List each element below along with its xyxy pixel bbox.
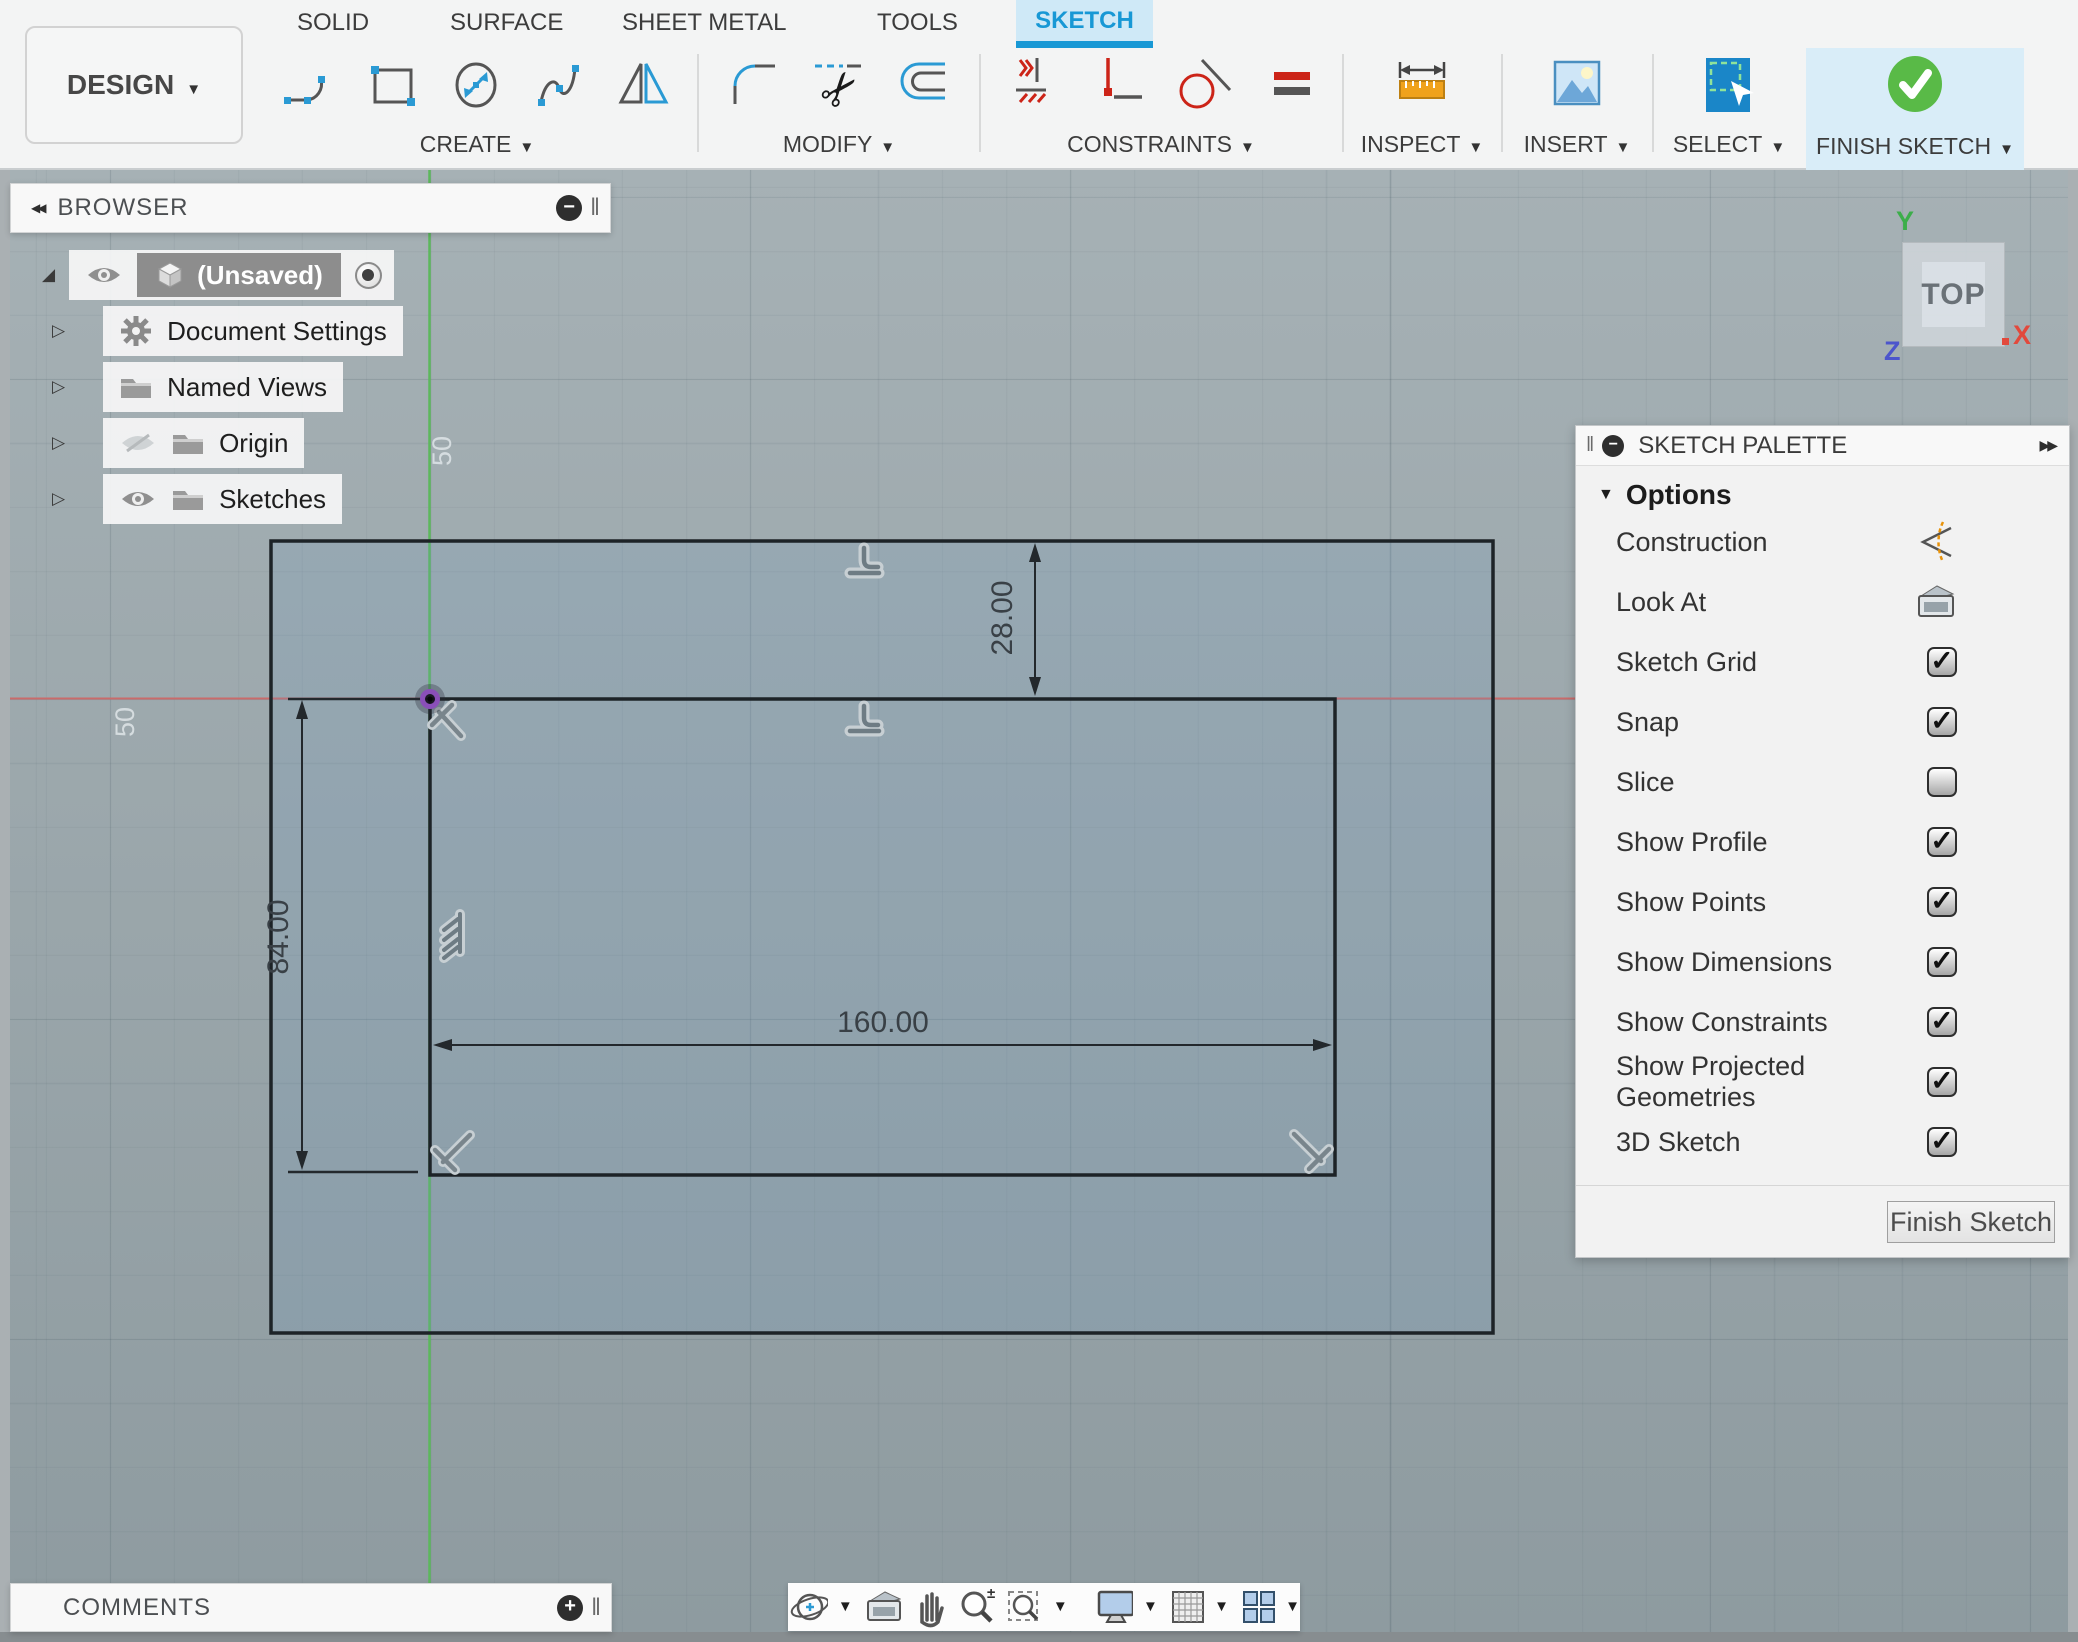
- row-label: Show Projected Geometries: [1616, 1051, 1927, 1113]
- tab-solid[interactable]: SOLID: [297, 9, 369, 37]
- row-label: Snap: [1616, 707, 1679, 738]
- document-selected[interactable]: (Unsaved): [137, 253, 341, 297]
- browser-row-named-views[interactable]: Named Views: [52, 362, 343, 412]
- expand-triangle-icon[interactable]: [52, 433, 65, 453]
- document-name: (Unsaved): [197, 260, 323, 291]
- construction-icon[interactable]: [1915, 520, 1957, 564]
- palette-row-construction[interactable]: Construction: [1576, 512, 2069, 572]
- eye-icon[interactable]: [85, 263, 123, 287]
- chevron-down-icon: [519, 131, 534, 158]
- palette-row-show-projected-geometries[interactable]: Show Projected Geometries: [1576, 1052, 2069, 1112]
- workspace-switcher[interactable]: DESIGN: [25, 26, 243, 144]
- look-at-icon[interactable]: [1913, 582, 1957, 622]
- minimize-palette-icon[interactable]: [1602, 435, 1624, 457]
- active-component-radio[interactable]: [355, 262, 382, 289]
- eye-off-icon[interactable]: [119, 431, 157, 455]
- spline-tool-icon[interactable]: [531, 54, 591, 114]
- zoom-window-icon[interactable]: [1005, 1586, 1043, 1628]
- palette-drag-handle[interactable]: [1576, 434, 1602, 457]
- svg-text:±: ±: [987, 1586, 995, 1602]
- palette-row-look-at[interactable]: Look At: [1576, 572, 2069, 632]
- viewcube-top-face[interactable]: TOP: [1921, 278, 1985, 312]
- tangent-constraint-icon[interactable]: [1172, 54, 1238, 114]
- orbit-icon[interactable]: [788, 1585, 828, 1629]
- browser-row-origin[interactable]: Origin: [52, 418, 304, 468]
- gear-icon: [119, 314, 153, 348]
- row-label: Slice: [1616, 767, 1675, 798]
- viewports-icon[interactable]: [1239, 1587, 1275, 1627]
- offset-tool-icon[interactable]: [893, 54, 953, 114]
- modify-label[interactable]: MODIFY: [783, 131, 872, 158]
- toolbar-separator: [697, 54, 699, 152]
- create-label[interactable]: CREATE: [420, 131, 512, 158]
- row-label: Sketch Grid: [1616, 647, 1757, 678]
- tab-surface[interactable]: SURFACE: [450, 9, 563, 37]
- folder-icon: [171, 430, 205, 456]
- row-label: Construction: [1616, 527, 1768, 558]
- browser-row-document-settings[interactable]: Document Settings: [52, 306, 403, 356]
- finish-sketch-palette-button[interactable]: Finish Sketch: [1887, 1201, 2055, 1243]
- comments-drag-handle[interactable]: [583, 1594, 611, 1622]
- workspace-label: DESIGN: [67, 69, 174, 101]
- options-title: Options: [1626, 479, 1732, 511]
- expand-triangle-icon[interactable]: [42, 265, 55, 285]
- zoom-window-dropdown-icon[interactable]: [1053, 1598, 1068, 1616]
- browser-item-label: Document Settings: [167, 316, 387, 347]
- insert-label[interactable]: INSERT: [1524, 131, 1608, 158]
- row-label: Show Dimensions: [1616, 947, 1832, 978]
- row-label: Show Profile: [1616, 827, 1768, 858]
- grid-snaps-icon[interactable]: [1168, 1587, 1204, 1627]
- row-label: 3D Sketch: [1616, 1127, 1741, 1158]
- palette-row-3d-sketch[interactable]: 3D Sketch: [1576, 1112, 2069, 1172]
- sketch-palette-header[interactable]: SKETCH PALETTE: [1576, 426, 2069, 466]
- toolbar-separator: [1342, 54, 1344, 152]
- browser-row-sketches[interactable]: Sketches: [52, 474, 342, 524]
- palette-row-show-constraints[interactable]: Show Constraints: [1576, 992, 2069, 1052]
- measure-tool-icon[interactable]: [1391, 54, 1453, 114]
- axis-label-x: X: [2013, 320, 2031, 351]
- sketch-grid-checkbox[interactable]: [1927, 647, 1957, 677]
- chevron-down-icon: [1598, 486, 1614, 504]
- palette-row-snap[interactable]: Snap: [1576, 692, 2069, 752]
- finish-sketch-check-icon: [1883, 54, 1947, 116]
- fixed-constraint-icon[interactable]: [1000, 54, 1062, 114]
- display-settings-dropdown-icon[interactable]: [1143, 1598, 1158, 1616]
- group-modify: ✂ MODIFY: [702, 50, 976, 168]
- chevron-down-icon: [1616, 131, 1631, 158]
- browser-title: BROWSER: [57, 194, 188, 222]
- group-select: SELECT: [1656, 50, 1802, 168]
- finish-sketch-label: FINISH SKETCH: [1816, 133, 1991, 160]
- browser-header[interactable]: BROWSER: [10, 183, 611, 233]
- show-constraints-checkbox[interactable]: [1927, 1007, 1957, 1037]
- finish-sketch-button[interactable]: FINISH SKETCH: [1806, 48, 2024, 170]
- slice-checkbox[interactable]: [1927, 767, 1957, 797]
- axis-label-y: Y: [1896, 206, 1914, 237]
- fillet-tool-icon[interactable]: [725, 54, 785, 114]
- palette-row-slice[interactable]: Slice: [1576, 752, 2069, 812]
- show-dimensions-checkbox[interactable]: [1927, 947, 1957, 977]
- folder-icon: [171, 486, 205, 512]
- chevron-down-icon: [1999, 133, 2014, 160]
- tab-sketch-active[interactable]: SKETCH: [1016, 0, 1153, 41]
- window-frame-left: [0, 170, 10, 1642]
- select-tool-icon[interactable]: [1698, 54, 1760, 116]
- options-section-header[interactable]: Options: [1576, 466, 2069, 512]
- group-constraints: CONSTRAINTS: [984, 50, 1338, 168]
- add-comment-icon[interactable]: [557, 1595, 583, 1621]
- viewcube[interactable]: TOP: [1902, 242, 2005, 347]
- equal-constraint-icon[interactable]: [1262, 54, 1322, 114]
- expand-triangle-icon[interactable]: [52, 377, 65, 397]
- browser-item-label: Named Views: [167, 372, 327, 403]
- chevron-down-icon: [1240, 131, 1255, 158]
- tab-sketch-underline: [1016, 41, 1153, 48]
- window-frame-bottom: [0, 1632, 2078, 1642]
- look-at-icon[interactable]: [863, 1588, 901, 1626]
- sketch-palette: SKETCH PALETTE Options Construction Look…: [1575, 425, 2070, 1258]
- palette-title: SKETCH PALETTE: [1638, 432, 1847, 460]
- row-label: Look At: [1616, 587, 1706, 618]
- group-create: CREATE: [262, 50, 692, 168]
- orbit-dropdown-icon[interactable]: [838, 1598, 853, 1616]
- snap-checkbox[interactable]: [1927, 707, 1957, 737]
- browser-item-label: Sketches: [219, 484, 326, 515]
- palette-row-show-profile[interactable]: Show Profile: [1576, 812, 2069, 872]
- show-points-checkbox[interactable]: [1927, 887, 1957, 917]
- viewports-dropdown-icon[interactable]: [1285, 1598, 1300, 1616]
- palette-row-show-dimensions[interactable]: Show Dimensions: [1576, 932, 2069, 992]
- show-profile-checkbox[interactable]: [1927, 827, 1957, 857]
- show-projected-geometries-checkbox[interactable]: [1927, 1067, 1957, 1097]
- toolbar-separator: [1652, 54, 1654, 152]
- fusion-window: 50 50 28.00 84.00 160.00: [0, 0, 2078, 1642]
- folder-icon: [119, 374, 153, 400]
- comments-title: COMMENTS: [63, 1594, 211, 1622]
- row-label: Show Points: [1616, 887, 1766, 918]
- chevron-down-icon: [1468, 131, 1483, 158]
- toolbar-separator: [1501, 54, 1503, 152]
- row-label: Show Constraints: [1616, 1007, 1828, 1038]
- cube-icon: [155, 260, 185, 290]
- chevron-down-icon: [186, 69, 201, 101]
- zoom-icon[interactable]: ±: [957, 1586, 995, 1628]
- group-insert: INSERT: [1504, 50, 1650, 168]
- navigation-bar: ±: [788, 1583, 1300, 1631]
- palette-row-show-points[interactable]: Show Points: [1576, 872, 2069, 932]
- insert-image-icon[interactable]: [1546, 54, 1608, 114]
- eye-icon[interactable]: [119, 487, 157, 511]
- pan-hand-icon[interactable]: [911, 1586, 947, 1628]
- tab-sheet-metal[interactable]: SHEET METAL: [622, 9, 786, 37]
- chevron-down-icon: [880, 131, 895, 158]
- group-inspect: INSPECT: [1346, 50, 1498, 168]
- palette-row-sketch-grid[interactable]: Sketch Grid: [1576, 632, 2069, 692]
- inspect-label[interactable]: INSPECT: [1361, 131, 1461, 158]
- line-tool-icon[interactable]: [279, 54, 339, 114]
- vertical-horizontal-constraint-icon[interactable]: [1086, 54, 1148, 114]
- select-label[interactable]: SELECT: [1673, 131, 1762, 158]
- expand-triangle-icon[interactable]: [52, 321, 65, 341]
- toolbar-separator: [979, 54, 981, 152]
- grid-snaps-dropdown-icon[interactable]: [1214, 1598, 1229, 1616]
- constraints-label[interactable]: CONSTRAINTS: [1067, 131, 1232, 158]
- expand-triangle-icon[interactable]: [52, 489, 65, 509]
- chevron-down-icon: [1770, 131, 1785, 158]
- trim-tool-icon[interactable]: ✂: [809, 54, 869, 114]
- display-settings-icon[interactable]: [1095, 1587, 1133, 1627]
- tab-tools[interactable]: TOOLS: [877, 9, 958, 37]
- axis-label-z: Z: [1884, 336, 1901, 367]
- dock-palette-icon[interactable]: [2039, 437, 2055, 455]
- minimize-browser-icon[interactable]: [556, 195, 582, 221]
- palette-footer: Finish Sketch: [1576, 1185, 2069, 1257]
- circle-tool-icon[interactable]: [447, 54, 507, 114]
- collapse-browser-icon[interactable]: [11, 199, 43, 217]
- browser-row-root[interactable]: (Unsaved): [42, 250, 394, 300]
- rectangle-tool-icon[interactable]: [363, 54, 423, 114]
- comments-bar[interactable]: COMMENTS: [10, 1583, 612, 1632]
- top-toolbar: DESIGN SOLID SURFACE SHEET METAL TOOLS S…: [0, 0, 2078, 170]
- browser-drag-handle[interactable]: [582, 194, 610, 222]
- 3d-sketch-checkbox[interactable]: [1927, 1127, 1957, 1157]
- axis-x-dot: [2002, 338, 2009, 345]
- browser-item-label: Origin: [219, 428, 288, 459]
- mirror-tool-icon[interactable]: [615, 54, 675, 114]
